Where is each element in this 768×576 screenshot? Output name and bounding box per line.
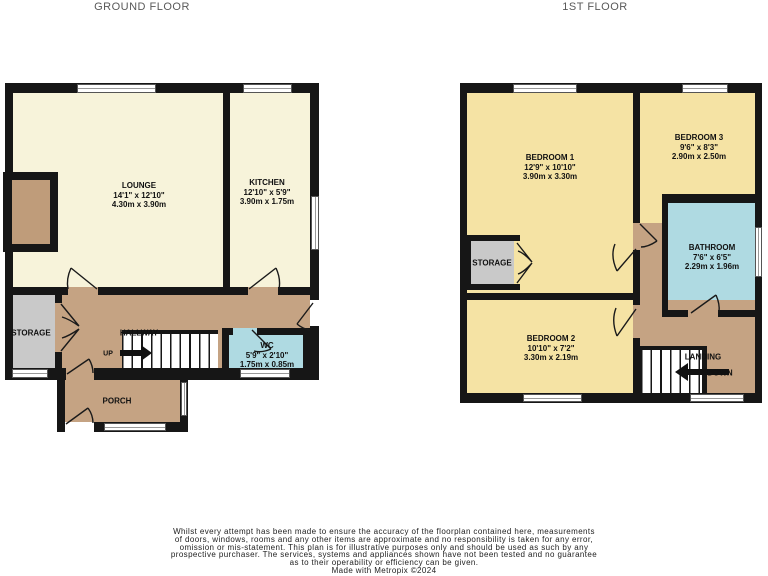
landing-label: LANDING: [685, 352, 721, 362]
ground-floor-title: GROUND FLOOR: [94, 1, 190, 13]
first-floor-title: 1ST FLOOR: [562, 1, 627, 13]
credit-line: Made with Metropix ©2024: [84, 567, 684, 575]
disclaimer: Whilst every attempt has been made to en…: [84, 528, 684, 575]
lounge-label: LOUNGE 14'1" x 12'10" 4.30m x 3.90m: [112, 181, 166, 210]
bedroom1-door: [613, 244, 636, 271]
storage-ff-door-upper: [517, 243, 532, 262]
storage-gf-label: STORAGE: [11, 328, 50, 338]
down-label: DOWN: [707, 368, 732, 378]
bathroom-door: [691, 295, 719, 313]
kitchen-door: [249, 268, 280, 289]
bedroom3-door: [640, 224, 657, 247]
storage-ff-label: STORAGE: [472, 258, 511, 268]
bedroom1-label: BEDROOM 1 12'9" x 10'10" 3.90m x 3.30m: [523, 153, 577, 182]
bedroom2-door: [614, 308, 636, 336]
storage-gf-door-lower: [61, 329, 79, 351]
bedroom3-label: BEDROOM 3 9'6" x 8'3" 2.90m x 2.50m: [672, 133, 726, 162]
storage-ff-door-lower: [517, 263, 532, 283]
wc-label: WC 5'9" x 2'10" 1.75m x 0.85m: [240, 341, 294, 370]
front-door: [66, 408, 93, 424]
lounge-door: [67, 268, 97, 289]
bathroom-label: BATHROOM 7'6" x 6'5" 2.29m x 1.96m: [685, 243, 739, 272]
back-door: [297, 303, 313, 330]
kitchen-label: KITCHEN 12'10" x 5'9" 3.90m x 1.75m: [240, 178, 294, 207]
up-arrow-icon: [120, 345, 152, 361]
porch-hall-door: [67, 359, 93, 374]
bedroom2-label: BEDROOM 2 10'10" x 7'2" 3.30m x 2.19m: [524, 334, 578, 363]
storage-gf-door-upper: [61, 304, 79, 326]
hallway-label: HALLWAY: [120, 328, 158, 338]
door-swing-overlay: [0, 0, 768, 576]
porch-label: PORCH: [103, 396, 132, 406]
up-label: UP: [103, 349, 113, 359]
floorplan-page: GROUND FLOOR 1ST FLOOR: [0, 0, 768, 576]
